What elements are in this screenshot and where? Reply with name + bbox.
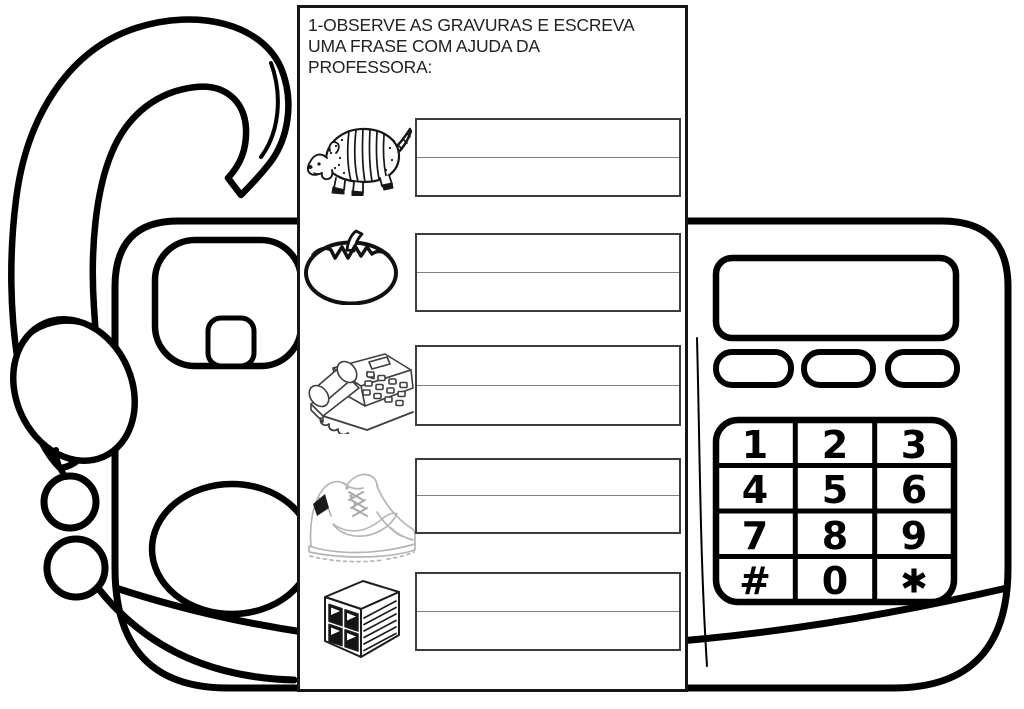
instruction-line-1: 1-OBSERVE AS GRAVURAS E ESCREVA (308, 15, 678, 36)
keypad-key-3[interactable]: 3 (901, 423, 927, 467)
writing-line[interactable] (417, 120, 679, 158)
writing-box-5 (415, 572, 681, 651)
writing-box-2 (415, 233, 681, 312)
keypad-key-star[interactable]: ✱ (900, 562, 928, 601)
writing-box-1 (415, 118, 681, 197)
worksheet-page: 1 2 3 4 5 6 7 8 9 # 0 ✱ (0, 0, 1024, 709)
keypad-key-4[interactable]: 4 (742, 468, 768, 512)
desk-telephone-image (303, 346, 415, 434)
sneaker-heel-patch (313, 494, 329, 516)
writing-box-4 (415, 458, 681, 534)
writing-line[interactable] (417, 612, 679, 650)
keypad-key-1[interactable]: 1 (742, 423, 768, 467)
function-button-2[interactable] (804, 352, 873, 385)
writing-box-3 (415, 345, 681, 426)
keypad-key-2[interactable]: 2 (822, 423, 848, 467)
writing-line[interactable] (417, 574, 679, 612)
writing-line[interactable] (417, 235, 679, 273)
worksheet-instructions: 1-OBSERVE AS GRAVURAS E ESCREVA UMA FRAS… (308, 15, 678, 78)
cord-loop-1 (44, 476, 96, 528)
keypad-key-9[interactable]: 9 (901, 514, 927, 558)
writing-line[interactable] (417, 460, 679, 496)
sneaker-image (303, 468, 419, 564)
writing-line[interactable] (417, 273, 679, 311)
instruction-line-2: UMA FRASE COM AJUDA DA (308, 36, 678, 57)
instruction-line-3: PROFESSORA: (308, 57, 678, 78)
function-button-1[interactable] (716, 352, 791, 385)
concrete-brick-image (313, 571, 409, 663)
tomato-image (303, 229, 399, 305)
keypad-key-0[interactable]: 0 (822, 559, 848, 603)
speaker-oval (152, 484, 312, 614)
writing-line[interactable] (417, 158, 679, 196)
writing-line[interactable] (417, 386, 679, 425)
keypad-key-8[interactable]: 8 (822, 514, 848, 558)
hook-switch-button[interactable] (208, 318, 254, 366)
keypad-key-7[interactable]: 7 (742, 514, 768, 558)
keypad-key-hash[interactable]: # (739, 559, 771, 603)
keypad-key-5[interactable]: 5 (822, 468, 848, 512)
writing-line[interactable] (417, 496, 679, 532)
keypad-key-6[interactable]: 6 (901, 468, 927, 512)
writing-line[interactable] (417, 347, 679, 386)
armadillo-image (306, 118, 412, 196)
worksheet-panel: 1-OBSERVE AS GRAVURAS E ESCREVA UMA FRAS… (297, 5, 688, 692)
phone-display (716, 258, 956, 338)
function-button-3[interactable] (888, 352, 957, 385)
